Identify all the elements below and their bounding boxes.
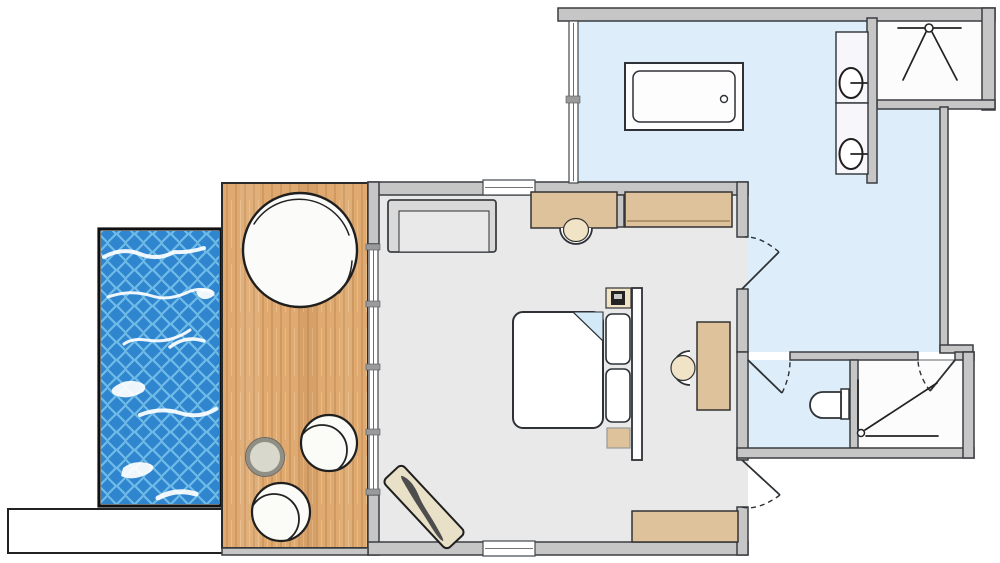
luggage-bench [632,511,738,542]
double-vanity [836,32,868,174]
wall-segment [737,182,748,237]
floor-plan-canvas [0,0,1000,563]
shower-room-floor [858,360,963,448]
wall-segment [737,352,748,460]
pillow [606,369,630,422]
wall-segment [737,448,974,458]
wardrobe [625,192,732,227]
nightstand-media [606,288,631,308]
wall-segment [982,8,995,110]
wall-segment [850,360,858,448]
walk-in-shower-floor [877,21,982,100]
pool-ledge [8,509,223,553]
deck-edge-band [222,548,368,555]
wall-segment [877,100,995,109]
writing-desk [697,322,730,410]
wall-segment [737,289,748,352]
headboard [632,288,642,460]
window-bathroom-left [566,21,580,183]
nightstand [607,428,630,448]
wall-segment [368,542,748,555]
floor-plan [0,0,1000,563]
wall-segment [963,352,974,458]
toilet [810,389,849,419]
sun-deck [222,183,368,548]
plunge-pool [99,229,221,506]
wall-segment [790,352,918,360]
bathroom-floor-corridor [748,182,940,352]
window-bedroom-top [483,180,535,195]
bathtub-drain [721,96,728,103]
bathroom-floor-nook [877,108,940,182]
sofa [388,200,496,252]
wall-segment [940,107,948,352]
bathtub [625,63,743,130]
pool-water [101,231,219,504]
shower-drain [858,430,865,437]
pillow [606,314,630,364]
mattress [513,312,603,428]
window-bedroom-bottom [483,541,535,556]
wall-segment [558,8,995,21]
wall-segment [368,182,379,244]
side-table [246,438,285,477]
round-daybed [243,193,357,307]
